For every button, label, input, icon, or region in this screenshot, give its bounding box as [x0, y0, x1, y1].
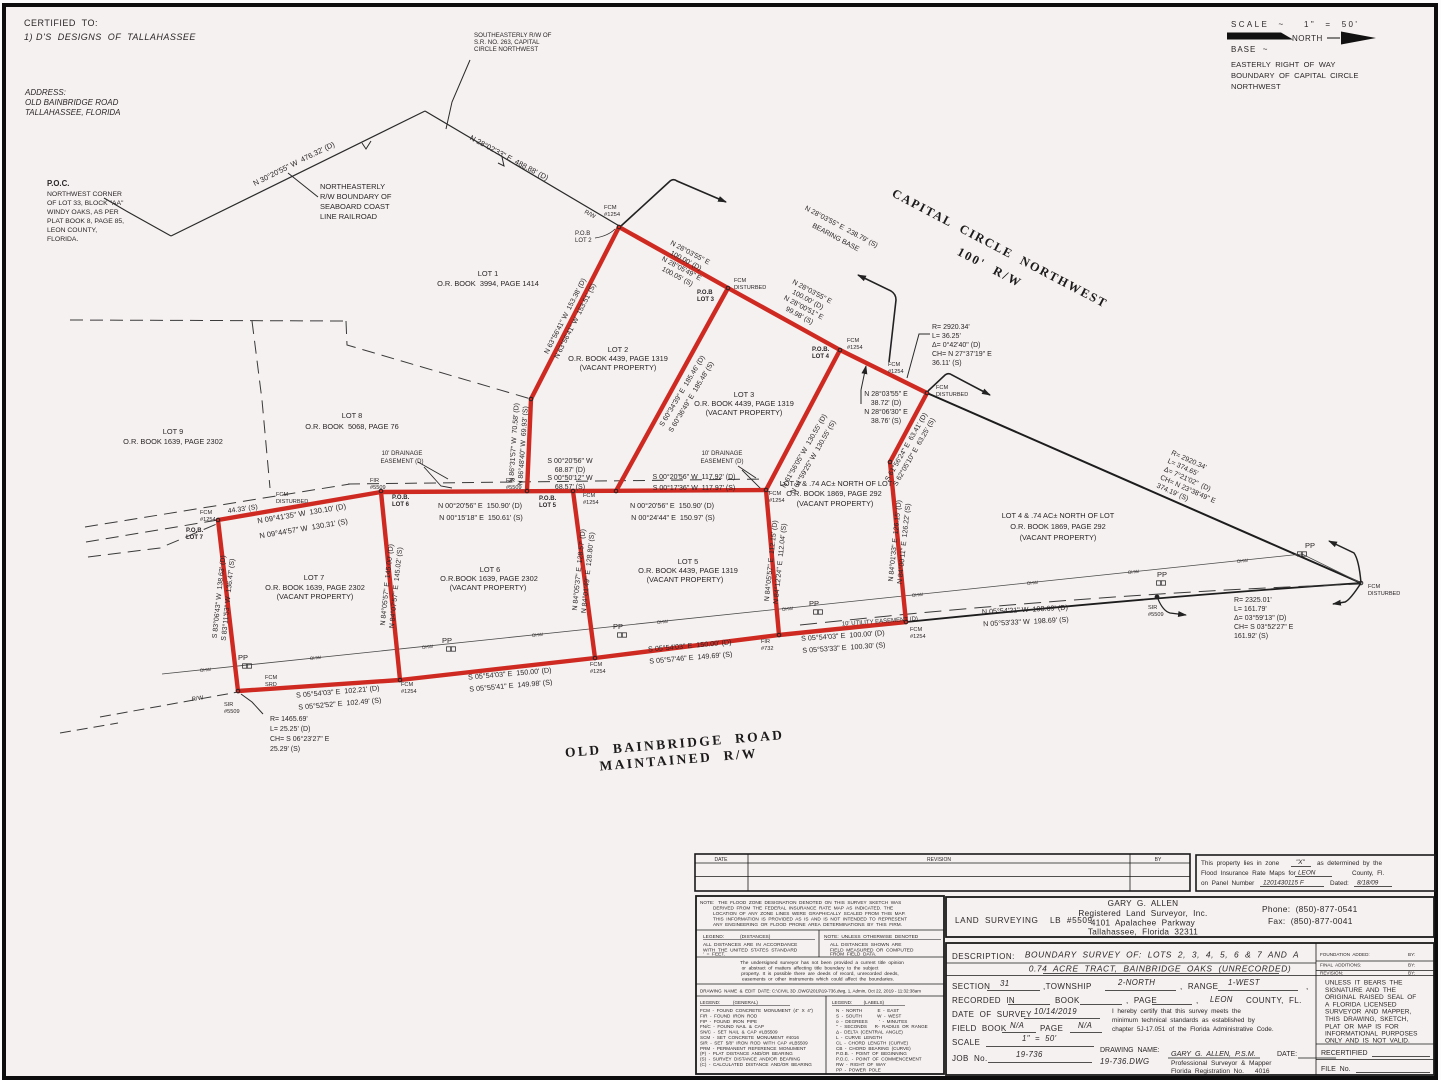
svg-text:SIR: SIR [224, 702, 233, 708]
svg-text:LOT 1: LOT 1 [478, 269, 498, 278]
svg-text:O.R. BOOK 1639, PAGE 2302: O.R. BOOK 1639, PAGE 2302 [123, 437, 223, 446]
svg-text:" - SECONDS R- RADIUS: " - SECONDS R- RADIUS OR RANGE [836, 1024, 928, 1029]
svg-text:LINE RAILROAD: LINE RAILROAD [320, 212, 378, 221]
svg-text:10/14/2019: 10/14/2019 [1034, 1007, 1077, 1016]
svg-text:(P) - PLAT DISTANCE AND/OR: (P) - PLAT DISTANCE AND/OR BEARING [700, 1051, 793, 1056]
svg-text:,TOWNSHIP: ,TOWNSHIP [1043, 982, 1092, 991]
svg-text:S - SOUTH W - W: S - SOUTH W - WEST [836, 1013, 902, 1018]
svg-text:Registered Land Surveyor, I: Registered Land Surveyor, Inc. [1078, 909, 1207, 918]
svg-text:68.87' (D): 68.87' (D) [555, 467, 586, 474]
svg-text:A FLORIDA LICENSED: A FLORIDA LICENSED [1325, 1001, 1397, 1008]
svg-text:LOT 9: LOT 9 [163, 427, 183, 436]
svg-text:S 00°50'12" W: S 00°50'12" W [547, 474, 593, 482]
svg-text:FCM: FCM [265, 675, 277, 681]
svg-text:EASEMENT (D): EASEMENT (D) [701, 459, 744, 465]
svg-text:DERIVED FROM THE FEDERAL I: DERIVED FROM THE FEDERAL INSURANCE RATE … [713, 906, 893, 911]
svg-text:PRM - PERMANENT REFERENCE: PRM - PERMANENT REFERENCE MONUMENT [700, 1046, 806, 1051]
svg-text:Δ= 03°59'13" (D): Δ= 03°59'13" (D) [1234, 614, 1286, 622]
svg-text:1-WEST: 1-WEST [1228, 978, 1261, 987]
svg-text:PAGE: PAGE [1040, 1024, 1063, 1033]
svg-text:19-736.DWG: 19-736.DWG [1100, 1057, 1150, 1066]
svg-text:LOT 6: LOT 6 [480, 565, 500, 574]
svg-text:DISTURBED: DISTURBED [734, 285, 766, 291]
svg-text:S 00°17'36" W 117.97' (S): S 00°17'36" W 117.97' (S) [653, 484, 736, 492]
svg-text:BASE ~: BASE ~ [1231, 45, 1268, 54]
svg-text:FCM: FCM [200, 510, 212, 516]
svg-text:FIP - FOUND IRON PIPE: FIP - FOUND IRON PIPE [700, 1019, 757, 1024]
svg-text:P.O.B: P.O.B [575, 231, 590, 237]
svg-text:FOUNDATION ADDED:: FOUNDATION ADDED: [1320, 952, 1370, 957]
svg-text:o - DEGREES ' - MI: o - DEGREES ' - MINUTES [836, 1019, 907, 1024]
svg-text:CB - CHORD BEARING (CURVE): CB - CHORD BEARING (CURVE) [836, 1046, 911, 1051]
svg-text:CH= S 03°52'27" E: CH= S 03°52'27" E [1234, 623, 1294, 631]
svg-text:DISTURBED: DISTURBED [276, 499, 308, 505]
svg-text:#1254: #1254 [604, 212, 621, 218]
svg-text:RW - RIGHT OF WAY: RW - RIGHT OF WAY [836, 1062, 886, 1067]
svg-text:(VACANT PROPERTY): (VACANT PROPERTY) [1020, 533, 1097, 542]
svg-text:easements or other instrume: easements or other instruments which cou… [742, 977, 894, 983]
svg-text:(VACANT PROPERTY): (VACANT PROPERTY) [706, 408, 783, 417]
svg-text:#1254: #1254 [590, 669, 606, 675]
svg-text:31: 31 [1000, 979, 1009, 988]
svg-text:(C) - CALCULATED DISTANCE: (C) - CALCULATED DISTANCE AND/OR BEARING [700, 1062, 812, 1067]
svg-text:LOT 6: LOT 6 [392, 502, 410, 508]
svg-text:FCM: FCM [888, 362, 900, 368]
svg-text:BOOK: BOOK [1055, 996, 1080, 1005]
svg-text:1201430115 F: 1201430115 F [1263, 880, 1305, 887]
svg-text:LEON: LEON [1298, 870, 1316, 877]
svg-text:S.R. NO. 263, CAPITAL: S.R. NO. 263, CAPITAL [474, 39, 540, 46]
svg-text:0.74 ACRE TRACT, BAINBRIDGE: 0.74 ACRE TRACT, BAINBRIDGE OAKS (UNRECO… [1029, 964, 1292, 974]
svg-text:LOT 7: LOT 7 [186, 535, 204, 541]
svg-text:10' DRAINAGE: 10' DRAINAGE [382, 451, 423, 457]
svg-text:RECORDED IN: RECORDED IN [952, 996, 1015, 1005]
svg-text:DRAWING NAME:: DRAWING NAME: [1100, 1047, 1160, 1054]
svg-text:(VACANT PROPERTY): (VACANT PROPERTY) [580, 363, 657, 372]
svg-text:, PAGE: , PAGE [1126, 996, 1157, 1005]
svg-text:CH= S 06°23'27" E: CH= S 06°23'27" E [270, 735, 330, 743]
svg-text:Professional Surveyor & Map: Professional Surveyor & Mapper [1171, 1060, 1272, 1067]
svg-text:I hereby certify that this: I hereby certify that this survey meets … [1112, 1008, 1241, 1015]
svg-text:,: , [1196, 996, 1199, 1005]
svg-text:SEABOARD COAST: SEABOARD COAST [320, 202, 390, 211]
svg-text:GARY G. ALLEN, P.S.M.: GARY G. ALLEN, P.S.M. [1171, 1049, 1256, 1058]
svg-text:FCM: FCM [769, 491, 781, 497]
svg-text:O.R. BOOK 5068, PAGE 76: O.R. BOOK 5068, PAGE 76 [305, 422, 399, 431]
svg-text:County, Fl.: County, Fl. [1352, 870, 1384, 877]
svg-text:LOT 2: LOT 2 [608, 345, 628, 354]
svg-text:Tallahassee, Florida 32311: Tallahassee, Florida 32311 [1088, 928, 1198, 937]
svg-text:ALL DISTANCES SHOWN ARE: ALL DISTANCES SHOWN ARE [830, 942, 901, 948]
svg-text:, RANGE: , RANGE [1180, 982, 1218, 991]
svg-text:L= 36.25': L= 36.25' [932, 333, 961, 340]
svg-text:#5509: #5509 [370, 485, 386, 491]
svg-text:38.76' (S): 38.76' (S) [871, 418, 901, 425]
svg-text:O.R. BOOK 1869, PAGE 292: O.R. BOOK 1869, PAGE 292 [1010, 522, 1106, 531]
svg-text:PP: PP [809, 599, 819, 608]
svg-text:FIR - FOUND IRON ROD: FIR - FOUND IRON ROD [700, 1013, 758, 1018]
svg-text:,: , [1306, 982, 1309, 991]
svg-text:O.R. BOOK 3994, PAGE 1414: O.R. BOOK 3994, PAGE 1414 [437, 279, 539, 288]
svg-text:(VACANT PROPERTY): (VACANT PROPERTY) [277, 592, 354, 601]
svg-text:FCM: FCM [847, 338, 859, 344]
svg-text:TALLAHASSEE, FLORIDA: TALLAHASSEE, FLORIDA [25, 108, 120, 117]
svg-text:SRD: SRD [265, 682, 277, 688]
svg-text:FCM: FCM [936, 385, 948, 391]
svg-text:Phone: (850)-877-0541: Phone: (850)-877-0541 [1262, 904, 1358, 914]
svg-text:SCALE ~ 1" = 50': SCALE ~ 1" = 50' [1231, 20, 1359, 29]
svg-text:BY:: BY: [1408, 971, 1415, 976]
svg-text:OF LOT 33, BLOCK "AA": OF LOT 33, BLOCK "AA" [47, 200, 124, 207]
svg-text:BOUNDARY SURVEY OF: LOTS 2: BOUNDARY SURVEY OF: LOTS 2, 3, 4, 5, 6 &… [1025, 950, 1299, 960]
svg-text:or abstract of matters aff: or abstract of matters affecting title b… [742, 966, 879, 972]
svg-text:chapter 5J-17.051 of the F: chapter 5J-17.051 of the Florida Adminis… [1112, 1026, 1274, 1033]
svg-text:N 00°24'44" E 150.97' (S): N 00°24'44" E 150.97' (S) [631, 513, 715, 522]
svg-text:EASEMENT (D): EASEMENT (D) [381, 459, 424, 465]
svg-text:LOT 4: LOT 4 [812, 354, 830, 360]
svg-text:#732: #732 [761, 646, 773, 652]
svg-text:FCM: FCM [604, 205, 617, 211]
svg-text:DRAWING NAME & EDIT DATE:: DRAWING NAME & EDIT DATE: C:\CIVIL 3D .D… [700, 989, 921, 994]
svg-text:LEGEND: (LABELS): LEGEND: (LABELS) [832, 1000, 885, 1005]
svg-text:#5509: #5509 [224, 709, 240, 715]
svg-text:P.O.B.: P.O.B. [186, 528, 204, 534]
svg-text:FIR: FIR [761, 639, 770, 645]
svg-text:SCM - SET CONCRETE MONUMEN: SCM - SET CONCRETE MONUMENT #4016 [700, 1035, 799, 1040]
svg-text:Flood Insurance Rate Maps: Flood Insurance Rate Maps for [1201, 870, 1297, 877]
svg-text:N 00°15'18" E 150.61' (S): N 00°15'18" E 150.61' (S) [439, 513, 523, 522]
svg-text:BY: BY [1155, 857, 1162, 863]
svg-text:(VACANT PROPERTY): (VACANT PROPERTY) [647, 575, 724, 584]
svg-text:FINAL ADDITIONS:: FINAL ADDITIONS: [1320, 963, 1361, 968]
svg-text:DISTURBED: DISTURBED [936, 392, 968, 398]
svg-text:(S) - SURVEY DISTANCE AND/: (S) - SURVEY DISTANCE AND/OR BEARING [700, 1057, 801, 1062]
svg-text:PP - POWER POLE: PP - POWER POLE [836, 1067, 881, 1072]
svg-text:L - CURVE LENGTH: L - CURVE LENGTH [836, 1035, 882, 1040]
svg-text:RECERTIFIED: RECERTIFIED [1321, 1050, 1368, 1057]
svg-text:1" = 50': 1" = 50' [1022, 1034, 1057, 1043]
svg-text:PP: PP [238, 653, 248, 662]
svg-text:WINDY OAKS, AS PER: WINDY OAKS, AS PER [47, 209, 119, 216]
svg-text:P.O.B.: P.O.B. [812, 347, 830, 353]
svg-text:NOTE: UNLESS OTHERWISE DENO: NOTE: UNLESS OTHERWISE DENOTED [824, 934, 919, 940]
svg-text:ALL DISTANCES ARE IN ACCOR: ALL DISTANCES ARE IN ACCORDANCE [703, 942, 797, 948]
svg-text:NORTHEASTERLY: NORTHEASTERLY [320, 182, 385, 191]
svg-text:FROM FIELD DATA.: FROM FIELD DATA. [830, 952, 876, 958]
svg-text:#1254: #1254 [401, 689, 417, 695]
svg-text:The undersigned surveyor ha: The undersigned surveyor has not been pr… [740, 960, 904, 966]
svg-text:P.O.B.: P.O.B. [539, 496, 557, 502]
svg-text:FCM: FCM [276, 492, 288, 498]
svg-text:1) D'S DESIGNS OF TALLAHASS: 1) D'S DESIGNS OF TALLAHASSEE [24, 32, 196, 42]
svg-text:N - NORTH E - E: N - NORTH E - EAST [836, 1008, 899, 1013]
svg-text:THIS DRAWING, SKETCH,: THIS DRAWING, SKETCH, [1325, 1016, 1408, 1023]
svg-text:minimum technical standards: minimum technical standards as establish… [1112, 1017, 1256, 1024]
svg-text:O.R.BOOK 1639, PAGE 2302: O.R.BOOK 1639, PAGE 2302 [440, 574, 538, 583]
svg-text:S 00°20'56" W: S 00°20'56" W [547, 457, 593, 465]
svg-text:OLD BAINBRIDGE ROAD: OLD BAINBRIDGE ROAD [25, 98, 119, 107]
svg-text:P.O.C. - POINT OF COMMENCE: P.O.C. - POINT OF COMMENCEMENT [836, 1057, 922, 1062]
svg-text:R/W BOUNDARY OF: R/W BOUNDARY OF [320, 192, 392, 201]
svg-text:PP: PP [1157, 570, 1167, 579]
svg-text:R= 1465.69': R= 1465.69' [270, 716, 308, 723]
svg-text:JOB No.: JOB No. [952, 1054, 988, 1063]
svg-text:FN/C - FOUND NAIL & CAP: FN/C - FOUND NAIL & CAP [700, 1024, 764, 1029]
svg-text:L= 161.79': L= 161.79' [1234, 606, 1267, 613]
svg-text:PP: PP [442, 636, 452, 645]
svg-text:LOT 5: LOT 5 [539, 503, 557, 509]
svg-text:#1254: #1254 [200, 517, 216, 523]
svg-text:LOT 2: LOT 2 [575, 238, 592, 244]
svg-text:N 28°03'55" E: N 28°03'55" E [864, 390, 908, 398]
svg-text:as determined by the: as determined by the [1317, 860, 1382, 867]
svg-text:SCALE: SCALE [952, 1038, 980, 1047]
svg-text:N 28°06'30" E: N 28°06'30" E [864, 408, 908, 416]
svg-text:GARY G. ALLEN: GARY G. ALLEN [1108, 899, 1179, 908]
svg-text:19-736: 19-736 [1016, 1050, 1043, 1059]
svg-text:SURVEYOR AND MAPPER,: SURVEYOR AND MAPPER, [1325, 1009, 1411, 1016]
svg-text:LEGEND: (DISTANCES): LEGEND: (DISTANCES) [703, 934, 771, 940]
svg-text:#1254: #1254 [910, 634, 926, 640]
svg-text:R= 2920.34': R= 2920.34' [932, 324, 970, 331]
svg-text:NOTE: THE FLOOD ZONE DESI: NOTE: THE FLOOD ZONE DESIGNATION DENOTED… [700, 900, 901, 905]
svg-text:L= 25.25' (D): L= 25.25' (D) [270, 726, 310, 733]
svg-text:#1254: #1254 [769, 498, 785, 504]
svg-text:on Panel Number: on Panel Number [1201, 880, 1255, 887]
svg-text:SIGNATURE AND THE: SIGNATURE AND THE [1325, 987, 1397, 994]
svg-text:FIR: FIR [370, 478, 379, 484]
svg-text:CERTIFIED TO:: CERTIFIED TO: [24, 18, 98, 28]
svg-text:LEON COUNTY,: LEON COUNTY, [47, 227, 97, 234]
svg-text:DESCRIPTION:: DESCRIPTION: [952, 952, 1015, 961]
svg-text:O.R. BOOK 4439, PAGE 1319: O.R. BOOK 4439, PAGE 1319 [638, 566, 738, 575]
svg-text:UNLESS IT BEARS THE: UNLESS IT BEARS THE [1325, 980, 1403, 987]
svg-text:This property lies in zone: This property lies in zone [1201, 860, 1280, 867]
svg-text:REVISION: REVISION [927, 857, 951, 863]
svg-text:P.O.B: P.O.B [697, 290, 713, 296]
svg-text:Δ - DELTA (CENTRAL ANGLE): Δ - DELTA (CENTRAL ANGLE) [836, 1030, 903, 1035]
svg-text:THIS INFORMATION IS PROVIDE: THIS INFORMATION IS PROVIDED AS IS AND I… [713, 917, 907, 922]
svg-text:10' DRAINAGE: 10' DRAINAGE [702, 451, 743, 457]
svg-text:property. It is possible t: property. It is possible there are deeds… [741, 971, 899, 977]
svg-text:LOT 5: LOT 5 [678, 557, 698, 566]
svg-text:SOUTHEASTERLY R/W OF: SOUTHEASTERLY R/W OF [474, 32, 552, 39]
svg-text:BOUNDARY OF CAPITAL CIRCLE: BOUNDARY OF CAPITAL CIRCLE [1231, 71, 1359, 80]
svg-text:O.R. BOOK 4439, PAGE 1319: O.R. BOOK 4439, PAGE 1319 [568, 354, 668, 363]
svg-text:P.O.B.: P.O.B. [392, 495, 410, 501]
svg-text:N 00°20'56" E 150.90' (D): N 00°20'56" E 150.90' (D) [438, 501, 522, 510]
svg-text:BY:: BY: [1408, 952, 1415, 957]
svg-text:LOT 7: LOT 7 [304, 573, 324, 582]
svg-text:COUNTY, FL.: COUNTY, FL. [1246, 996, 1302, 1005]
svg-text:BY:: BY: [1408, 963, 1415, 968]
svg-text:NORTHWEST CORNER: NORTHWEST CORNER [47, 191, 122, 198]
svg-text:(VACANT PROPERTY): (VACANT PROPERTY) [797, 499, 874, 508]
svg-text:ANY ENGINEERING OR FLOOD P: ANY ENGINEERING OR FLOOD PRONE AREA DETE… [713, 922, 902, 927]
svg-text:Fax: (850)-877-0041: Fax: (850)-877-0041 [1268, 916, 1353, 926]
svg-text:CH= N 27°37'19" E: CH= N 27°37'19" E [932, 350, 992, 358]
svg-text:REVISION:: REVISION: [1320, 971, 1343, 976]
svg-text:FCM: FCM [590, 662, 602, 668]
svg-text:FILE No.: FILE No. [1321, 1066, 1351, 1073]
svg-text:SIR: SIR [1148, 605, 1157, 611]
svg-text:161.92' (S): 161.92' (S) [1234, 633, 1268, 640]
svg-text:PP: PP [1305, 541, 1315, 550]
svg-text:O.R. BOOK 4439, PAGE 1319: O.R. BOOK 4439, PAGE 1319 [694, 399, 794, 408]
svg-text:ADDRESS:: ADDRESS: [24, 88, 66, 97]
svg-text:"X": "X" [1296, 859, 1306, 866]
svg-text:LEON: LEON [1210, 995, 1233, 1004]
svg-text:#1254: #1254 [847, 345, 863, 351]
svg-text:S 00°20'56" W 117.92' (D): S 00°20'56" W 117.92' (D) [653, 473, 736, 481]
svg-text:ORIGINAL RAISED SEAL OF: ORIGINAL RAISED SEAL OF [1325, 994, 1416, 1001]
svg-text:LOT 3: LOT 3 [734, 390, 754, 399]
svg-text:FCM: FCM [734, 278, 746, 284]
svg-text:N 00°20'56" E 150.90' (D): N 00°20'56" E 150.90' (D) [630, 501, 714, 510]
svg-text:R= 2325.01': R= 2325.01' [1234, 597, 1272, 604]
svg-text:2-NORTH: 2-NORTH [1117, 978, 1155, 987]
svg-text:P.O.C.: P.O.C. [47, 179, 69, 188]
svg-text:FCM: FCM [583, 493, 595, 499]
svg-text:N/A: N/A [1010, 1021, 1024, 1030]
svg-text:PLAT BOOK 8, PAGE 85,: PLAT BOOK 8, PAGE 85, [47, 218, 124, 225]
svg-text:SECTION: SECTION [952, 982, 990, 991]
svg-text:DISTURBED: DISTURBED [1368, 591, 1400, 597]
svg-text:FCM: FCM [1368, 584, 1380, 590]
svg-text:#1254: #1254 [583, 500, 599, 506]
svg-text:Δ= 0°42'40" (D): Δ= 0°42'40" (D) [932, 341, 980, 349]
svg-text:LOT 3: LOT 3 [697, 297, 715, 303]
svg-text:CL - CHORD LENGTH (CURVE): CL - CHORD LENGTH (CURVE) [836, 1040, 908, 1045]
svg-text:FCM: FCM [401, 682, 413, 688]
svg-text:' = FEET.: ' = FEET. [703, 952, 725, 958]
svg-text:DATE OF SURVEY: DATE OF SURVEY [952, 1010, 1032, 1019]
svg-text:LOT 8: LOT 8 [342, 411, 362, 420]
svg-text:ONLY AND IS NOT VALID.: ONLY AND IS NOT VALID. [1325, 1037, 1410, 1044]
svg-text:O.R. BOOK 1639, PAGE 2302: O.R. BOOK 1639, PAGE 2302 [265, 583, 365, 592]
svg-text:LOCATION OF ANY ZONE LINES: LOCATION OF ANY ZONE LINES WERE GRAPHICA… [713, 911, 906, 916]
svg-text:36.11' (S): 36.11' (S) [932, 360, 962, 367]
svg-text:SN/C - SET NAIL & CAP #L: SN/C - SET NAIL & CAP #LB5509 [700, 1030, 778, 1035]
svg-text:N/A: N/A [1078, 1021, 1092, 1030]
svg-text:4101 Apalachee Parkway: 4101 Apalachee Parkway [1091, 919, 1196, 928]
svg-text:LOT 4 & .74 AC± NORTH OF LOT: LOT 4 & .74 AC± NORTH OF LOT [1002, 511, 1115, 520]
svg-text:(VACANT PROPERTY): (VACANT PROPERTY) [450, 583, 527, 592]
svg-text:38.72' (D): 38.72' (D) [871, 400, 902, 407]
svg-text:LAND SURVEYING LB #5509: LAND SURVEYING LB #5509 [955, 916, 1093, 925]
svg-text:O.R. BOOK 1869, PAGE 292: O.R. BOOK 1869, PAGE 292 [786, 489, 882, 498]
svg-text:DATE:: DATE: [1277, 1051, 1297, 1058]
svg-text:Florida Registration No.: Florida Registration No. 4016 [1171, 1068, 1270, 1075]
svg-text:LEGEND: (GENERAL): LEGEND: (GENERAL) [700, 1000, 758, 1005]
svg-text:NORTHWEST: NORTHWEST [1231, 82, 1281, 91]
svg-text:FCM: FCM [910, 627, 922, 633]
svg-text:PP: PP [613, 622, 623, 631]
svg-text:EASTERLY RIGHT OF WAY: EASTERLY RIGHT OF WAY [1231, 60, 1336, 69]
svg-text:DATE: DATE [715, 857, 729, 863]
svg-text:#5509: #5509 [1148, 612, 1164, 618]
svg-text:FIELD BOOK: FIELD BOOK [952, 1024, 1007, 1033]
svg-text:#1254: #1254 [888, 369, 904, 375]
svg-text:Dated:: Dated: [1330, 880, 1349, 887]
svg-text:NORTH: NORTH [1292, 34, 1323, 43]
svg-text:FCM - FOUND CONCRETE MONUM: FCM - FOUND CONCRETE MONUMENT (4" X 4") [700, 1008, 813, 1013]
svg-text:P.O.B. - POINT OF BEGINNIN: P.O.B. - POINT OF BEGINNING [836, 1051, 907, 1056]
svg-text:SIR - SET 5/8" IRON ROD: SIR - SET 5/8" IRON ROD WITH CAP #LB5509 [700, 1040, 808, 1045]
svg-text:68.57' (S): 68.57' (S) [555, 484, 585, 491]
svg-text:CIRCLE NORTHWEST: CIRCLE NORTHWEST [474, 46, 538, 53]
svg-text:FLORIDA.: FLORIDA. [47, 236, 78, 243]
svg-text:PLAT OR MAP IS FOR: PLAT OR MAP IS FOR [1325, 1023, 1399, 1030]
svg-text:8/18/09: 8/18/09 [1357, 880, 1379, 887]
svg-text:25.29' (S): 25.29' (S) [270, 746, 300, 753]
